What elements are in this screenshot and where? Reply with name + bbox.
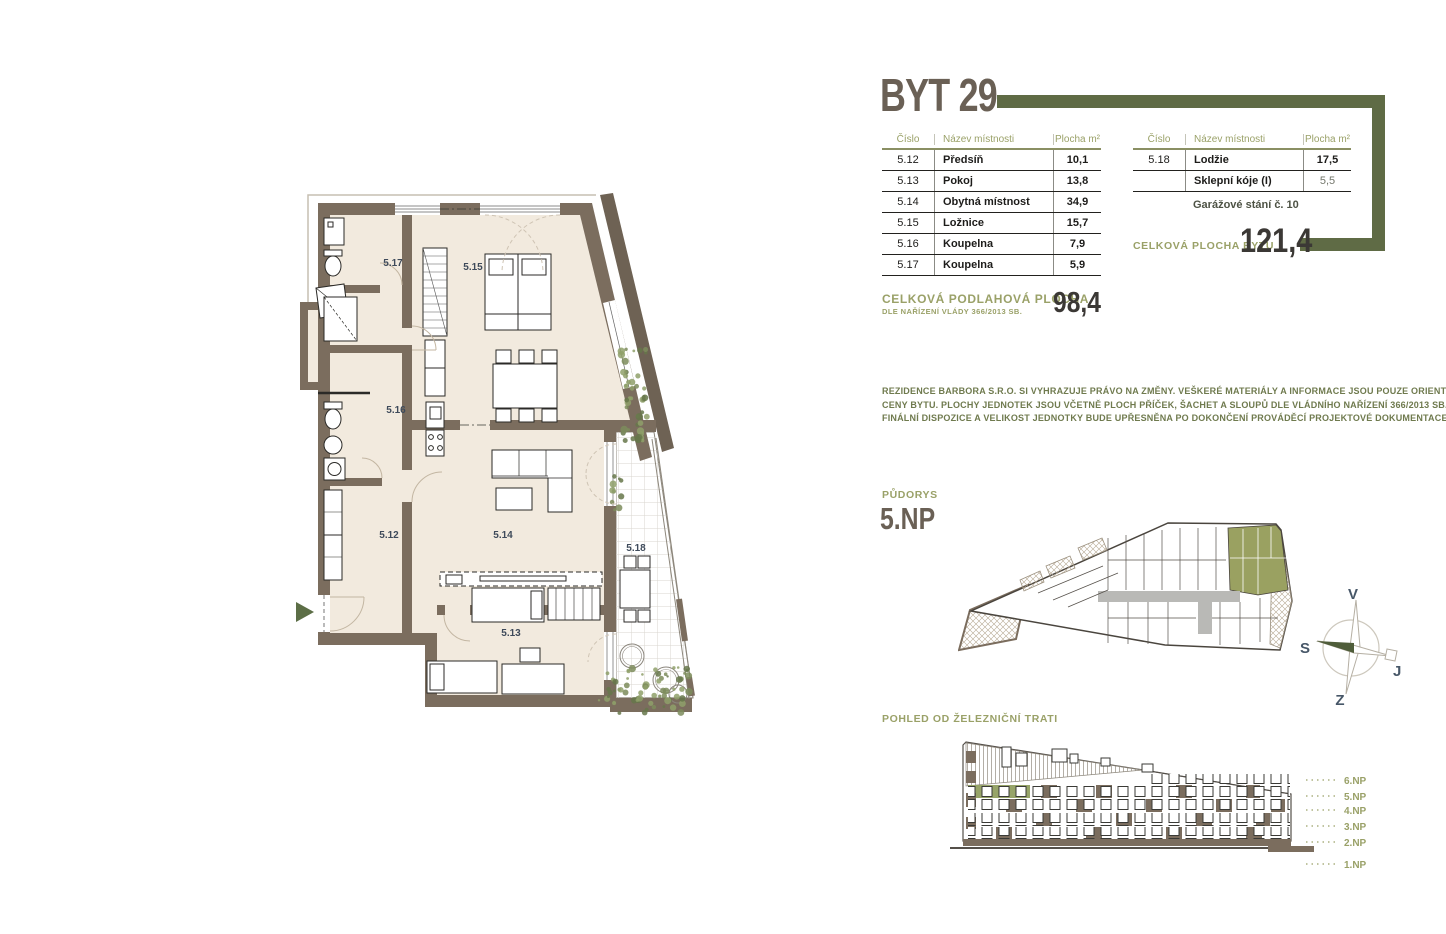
page: 5.175.155.165.125.145.135.18 BYT 29 Čísl… [0,0,1446,934]
table-row: 5.13Pokoj13,8 [882,171,1101,192]
floor-level-labels: 6.NP5.NP4.NP3.NP2.NP1.NP [1306,776,1367,871]
compass-label-bottom: Z [1335,692,1344,707]
garage-note: Garážové stání č. 10 [1133,199,1351,211]
compass-label-top: V [1348,586,1358,603]
room-label-5.13: 5.13 [501,628,521,639]
elevation-svg: 6.NP5.NP4.NP3.NP2.NP1.NP [946,733,1391,893]
table-row: 5.12Předsíň10,1 [882,150,1101,171]
room-label-5.15: 5.15 [463,262,483,273]
table-header: Číslo Název místnosti Plocha m² [1133,129,1351,150]
siteplan-floor: 5.NP [880,503,935,534]
siteplan-svg [958,498,1308,668]
table-header: Číslo Název místnosti Plocha m² [882,129,1101,150]
total-floor-sublabel: DLE NAŘÍZENÍ VLÁDY 366/2013 SB. [882,307,1022,316]
accent-bar-bottom [1300,238,1385,251]
floor-label-4.NP: 4.NP [1344,806,1367,817]
room-label-5.16: 5.16 [386,405,406,416]
table-row: 5.18Lodžie17,5 [1133,150,1351,171]
compass-label-left: S [1300,640,1310,657]
floor-label-6.NP: 6.NP [1344,776,1367,787]
table-row: 5.16Koupelna7,9 [882,234,1101,255]
room-label-5.14: 5.14 [493,530,513,541]
floorplan-svg: 5.175.155.165.125.145.135.18 [280,190,720,750]
floor-label-5.NP: 5.NP [1344,792,1367,803]
total-apartment-value: 121,4 [1240,224,1312,258]
table-row: 5.17Koupelna5,9 [882,255,1101,276]
table-body: 5.18Lodžie17,5Sklepní kóje (I)5,5 [1133,150,1351,192]
disclaimer: REZIDENCE BARBORA S.R.O. SI VYHRAZUJE PR… [882,385,1446,426]
room-label-5.12: 5.12 [379,530,399,541]
accent-bar-right [1372,95,1385,251]
compass-icon: VSJZ [1296,585,1406,707]
floor-label-3.NP: 3.NP [1344,822,1367,833]
total-floor-value: 98,4 [1053,289,1101,318]
floor-label-2.NP: 2.NP [1344,838,1367,849]
table-row: 5.14Obytná místnost34,9 [882,192,1101,213]
rooms-table-extras: Číslo Název místnosti Plocha m² 5.18Lodž… [1133,129,1351,211]
floor-label-1.NP: 1.NP [1344,860,1367,871]
page-title: BYT 29 [880,72,997,118]
table-row: 5.15Ložnice15,7 [882,213,1101,234]
siteplan-label: PŮDORYS [882,489,938,501]
entrance-arrow-icon [296,602,314,622]
base-band [963,839,1291,846]
elevation-label: POHLED OD ŽELEZNIČNÍ TRATI [882,713,1058,725]
table-row: Sklepní kóje (I)5,5 [1133,171,1351,192]
apartment-floor [303,209,632,707]
table-body: 5.12Předsíň10,15.13Pokoj13,85.14Obytná m… [882,150,1101,276]
compass-label-right: J [1393,663,1401,680]
room-label-5.17: 5.17 [383,258,403,269]
room-label-5.18: 5.18 [626,543,646,554]
rooms-table-main: Číslo Název místnosti Plocha m² 5.12Před… [882,129,1101,276]
accent-bar-top [997,95,1385,108]
